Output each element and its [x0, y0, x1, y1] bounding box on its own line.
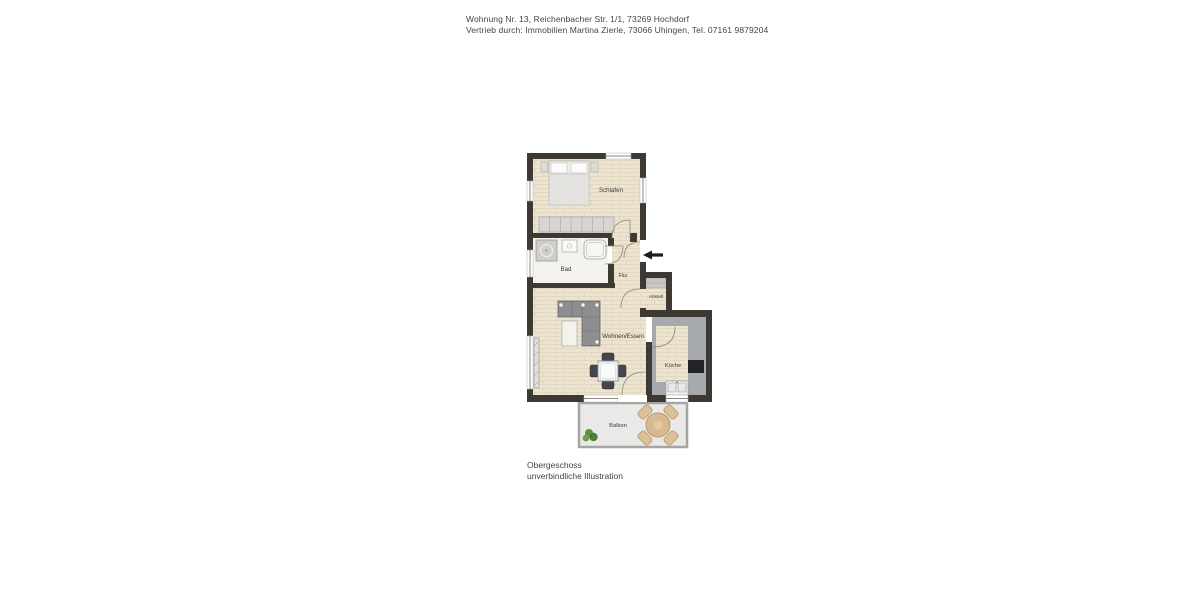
wall — [527, 201, 533, 250]
wall — [527, 395, 584, 402]
window — [527, 250, 533, 277]
footer-line-1: Obergeschoss — [527, 460, 623, 471]
stove — [688, 360, 704, 373]
wall — [640, 310, 712, 317]
wardrobe — [539, 217, 614, 232]
sofa-cushion — [581, 303, 584, 306]
wall — [527, 153, 606, 159]
sofa-cushion — [559, 303, 562, 306]
dining-chair — [602, 353, 614, 361]
room-label-schlafen: Schlafen — [599, 187, 624, 194]
balcony-door-opening — [618, 395, 647, 402]
header-line-1: Wohnung Nr. 13, Reichenbacher Str. 1/1, … — [466, 14, 768, 25]
shower — [536, 240, 557, 261]
storage-shelf — [646, 278, 666, 288]
window — [527, 181, 533, 201]
window — [640, 178, 646, 203]
header-text: Wohnung Nr. 13, Reichenbacher Str. 1/1, … — [466, 14, 768, 35]
footer-line-2: unverbindliche Illustration — [527, 471, 623, 482]
bed — [549, 161, 589, 205]
kitchen-sink — [666, 381, 688, 395]
sofa-cushion — [595, 303, 598, 306]
floorplan: Schlafen Bad Flur Abstell Wohnen/Essen K… — [510, 145, 725, 455]
wall — [608, 238, 614, 246]
dining-chair — [618, 365, 626, 377]
kitchen-window — [666, 395, 688, 402]
wall — [527, 153, 533, 181]
coffee-table — [562, 321, 577, 346]
entrance-opening — [640, 240, 646, 262]
pillow — [551, 163, 567, 173]
wall — [640, 153, 646, 178]
balcony-window — [584, 395, 618, 402]
wall — [527, 277, 533, 336]
nightstand — [541, 162, 548, 172]
room-label-flur: Flur — [619, 273, 628, 279]
kitchen-floor — [656, 326, 688, 382]
wall — [688, 395, 712, 402]
room-label-abstell: Abstell — [649, 294, 663, 300]
balcony-table-center — [654, 421, 663, 430]
sofa-cushion — [595, 340, 598, 343]
nightstand — [591, 162, 598, 172]
window — [606, 153, 631, 159]
window — [527, 336, 533, 389]
dining-chair — [590, 365, 598, 377]
wall — [533, 283, 615, 288]
balcony — [579, 403, 687, 447]
wall — [608, 264, 614, 283]
radiator — [534, 338, 539, 388]
wall — [646, 342, 652, 395]
room-label-kueche: Küche — [665, 363, 681, 369]
bath-sink — [562, 240, 577, 252]
header-line-2: Vertrieb durch: Immobilien Martina Zierl… — [466, 25, 768, 36]
room-label-bad: Bad — [560, 266, 572, 273]
bathtub — [584, 240, 606, 259]
wall — [647, 395, 666, 402]
wall — [630, 233, 637, 242]
wall — [640, 203, 646, 240]
footer-text: Obergeschoss unverbindliche Illustration — [527, 460, 623, 482]
room-label-balkon: Balkon — [609, 423, 627, 429]
dining-chair — [602, 381, 614, 389]
room-label-wohnen-essen: Wohnen/Essen — [602, 333, 644, 340]
wall — [640, 278, 646, 289]
wall — [706, 310, 712, 402]
wall — [533, 233, 612, 238]
pillow — [571, 163, 587, 173]
page: Wohnung Nr. 13, Reichenbacher Str. 1/1, … — [0, 0, 1200, 600]
